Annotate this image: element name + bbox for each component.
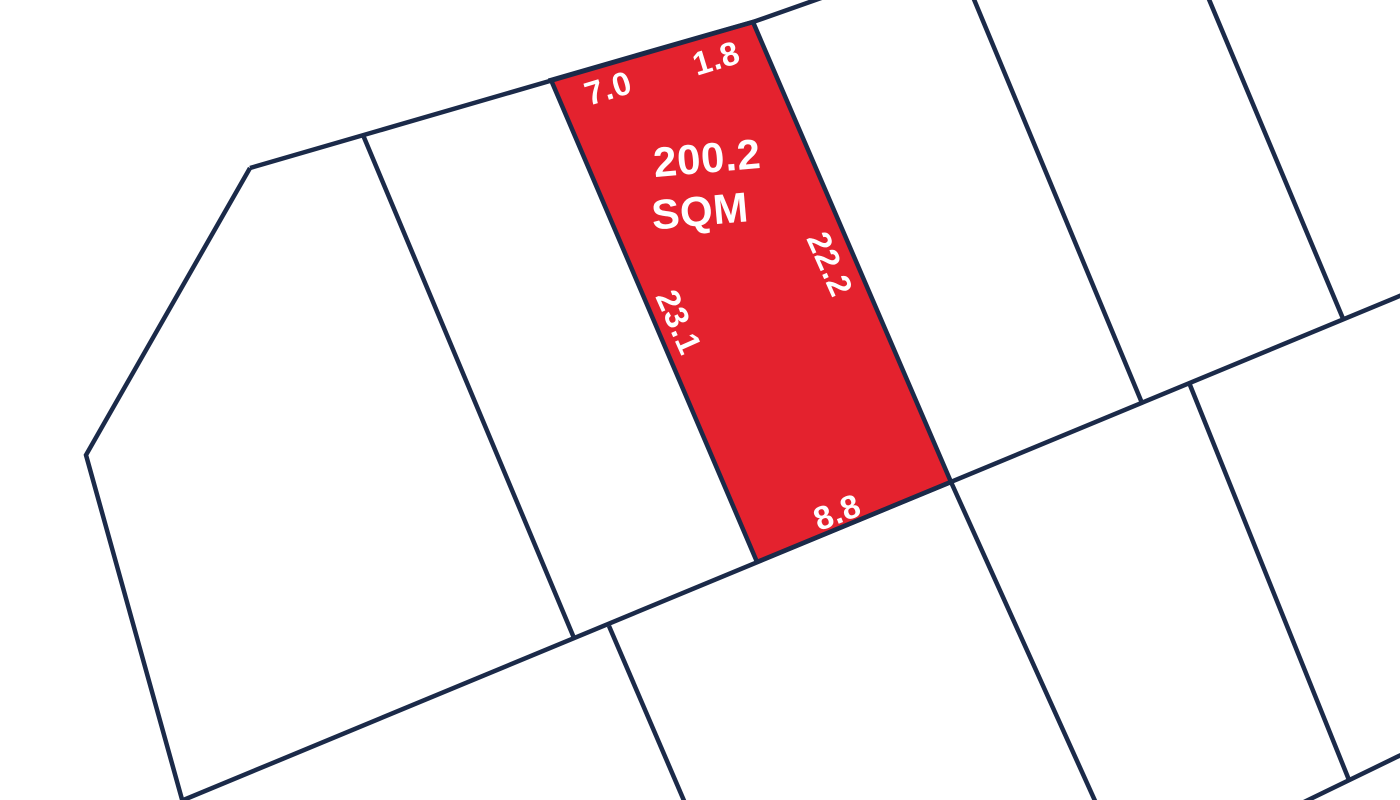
divider-lot4-lot5 — [1208, 0, 1344, 321]
divider-lot3-lot4 — [973, 0, 1142, 403]
west-boundary-line — [86, 168, 250, 800]
bottom-row-divider-west — [609, 626, 685, 800]
lot-plan-svg: 7.01.8200.2SQM22.223.18.8 — [0, 0, 1400, 800]
divider-lot1-lot2 — [363, 135, 574, 638]
area-unit-label: SQM — [650, 183, 751, 238]
bottom-row-divider-east — [1190, 385, 1349, 780]
bottom-row-divider-middle — [951, 482, 1096, 800]
area-value-label: 200.2 — [651, 130, 762, 186]
southeast-road-boundary-line — [1302, 754, 1400, 800]
lot-plan-container: 7.01.8200.2SQM22.223.18.8 — [0, 0, 1400, 800]
